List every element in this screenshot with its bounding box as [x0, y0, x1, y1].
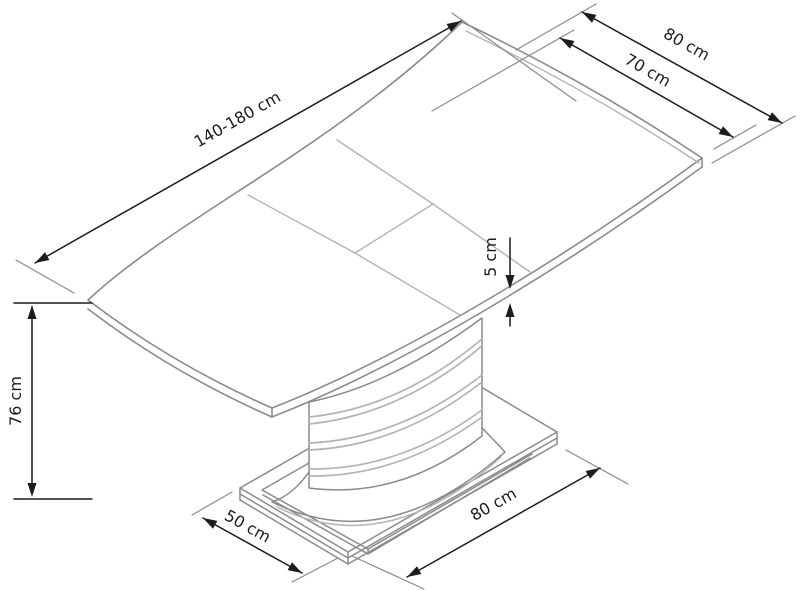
dim-label-base-depth: 50 cm — [221, 506, 274, 547]
arrowhead — [288, 562, 302, 573]
dim-label-height: 76 cm — [6, 376, 25, 426]
dim-label-top-thickness: 5 cm — [481, 237, 500, 277]
arrowhead — [407, 566, 421, 577]
drawing-canvas: 140-180 cm 80 cm 70 cm 5 cm 76 cm 50 cm … — [0, 0, 800, 591]
arrowhead — [506, 303, 515, 317]
extension-line — [16, 260, 74, 293]
arrowhead — [586, 468, 600, 479]
extension-line — [566, 450, 628, 484]
arrowhead — [719, 126, 733, 137]
arrowhead — [28, 483, 37, 497]
arrowhead — [28, 305, 37, 319]
dim-label-length: 140-180 cm — [191, 87, 284, 151]
extension-line — [192, 492, 232, 515]
extension-line — [516, 4, 596, 50]
dim-label-top-end-width: 80 cm — [660, 24, 713, 65]
dim-height — [14, 303, 92, 499]
dim-label-top-inner-width: 70 cm — [621, 50, 674, 91]
arrowhead — [203, 518, 217, 529]
table-dimension-drawing: 140-180 cm 80 cm 70 cm 5 cm 76 cm 50 cm … — [0, 0, 800, 591]
arrowhead — [582, 12, 596, 23]
arrowhead — [560, 38, 574, 49]
tabletop — [88, 22, 702, 417]
extension-line — [714, 125, 756, 149]
arrowhead — [35, 252, 49, 263]
tabletop-surface — [88, 22, 702, 408]
arrowhead — [768, 112, 782, 123]
